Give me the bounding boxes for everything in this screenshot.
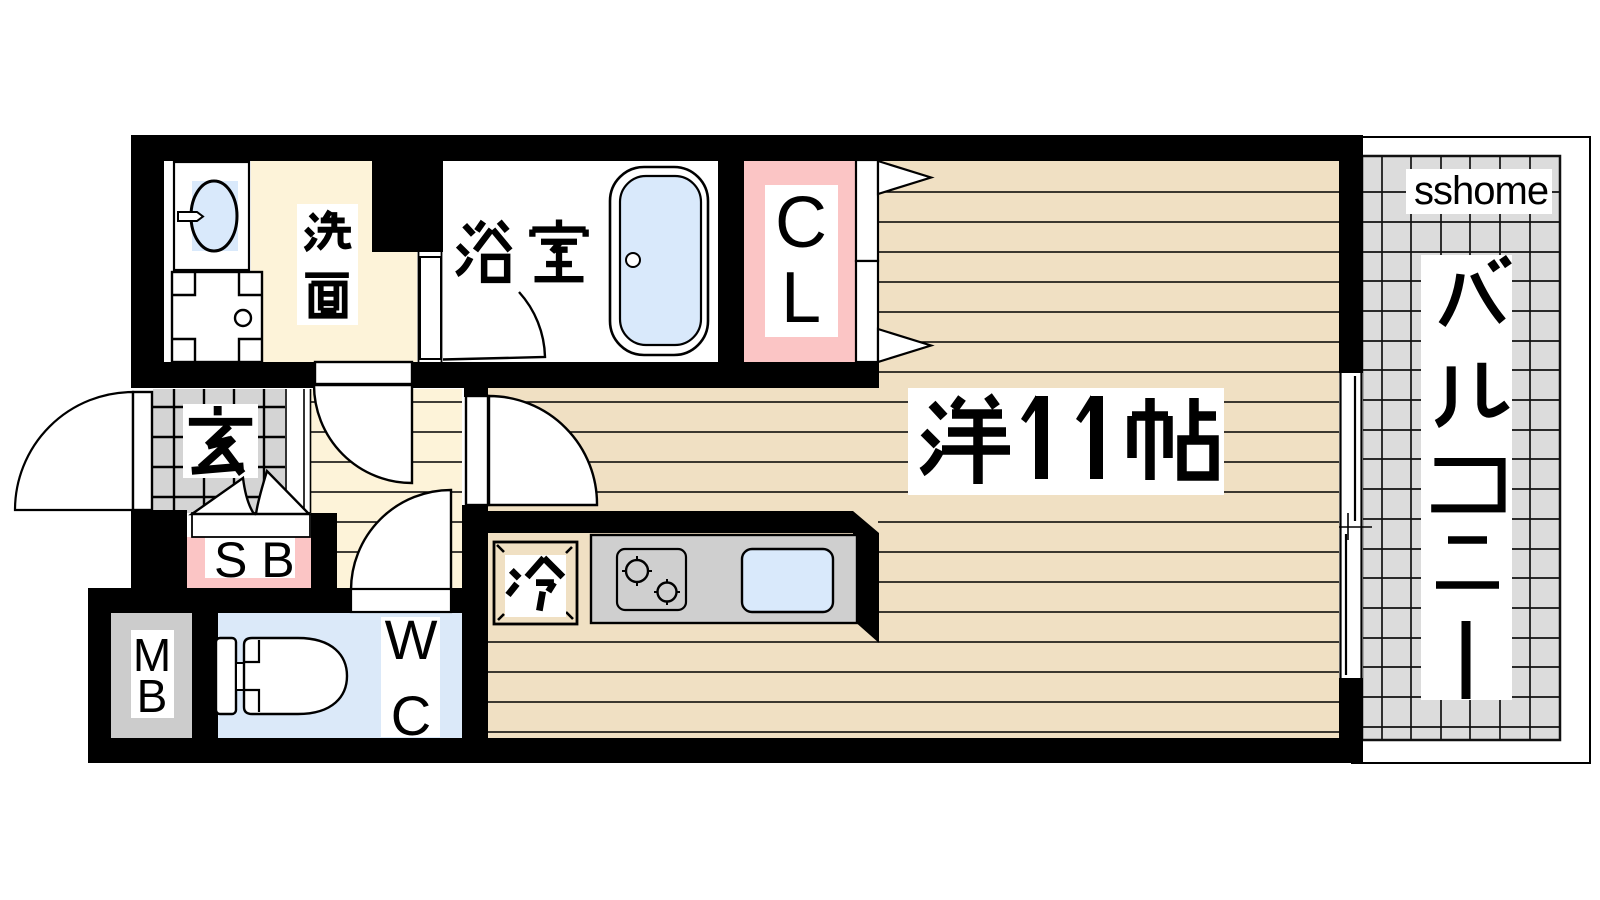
svg-text:B: B xyxy=(137,670,168,722)
svg-text:sshome: sshome xyxy=(1414,169,1548,213)
svg-text:S B: S B xyxy=(214,532,295,588)
svg-text:C: C xyxy=(391,684,431,747)
svg-text:C: C xyxy=(775,183,827,263)
svg-text:W: W xyxy=(385,608,438,671)
svg-text:L: L xyxy=(781,258,821,338)
